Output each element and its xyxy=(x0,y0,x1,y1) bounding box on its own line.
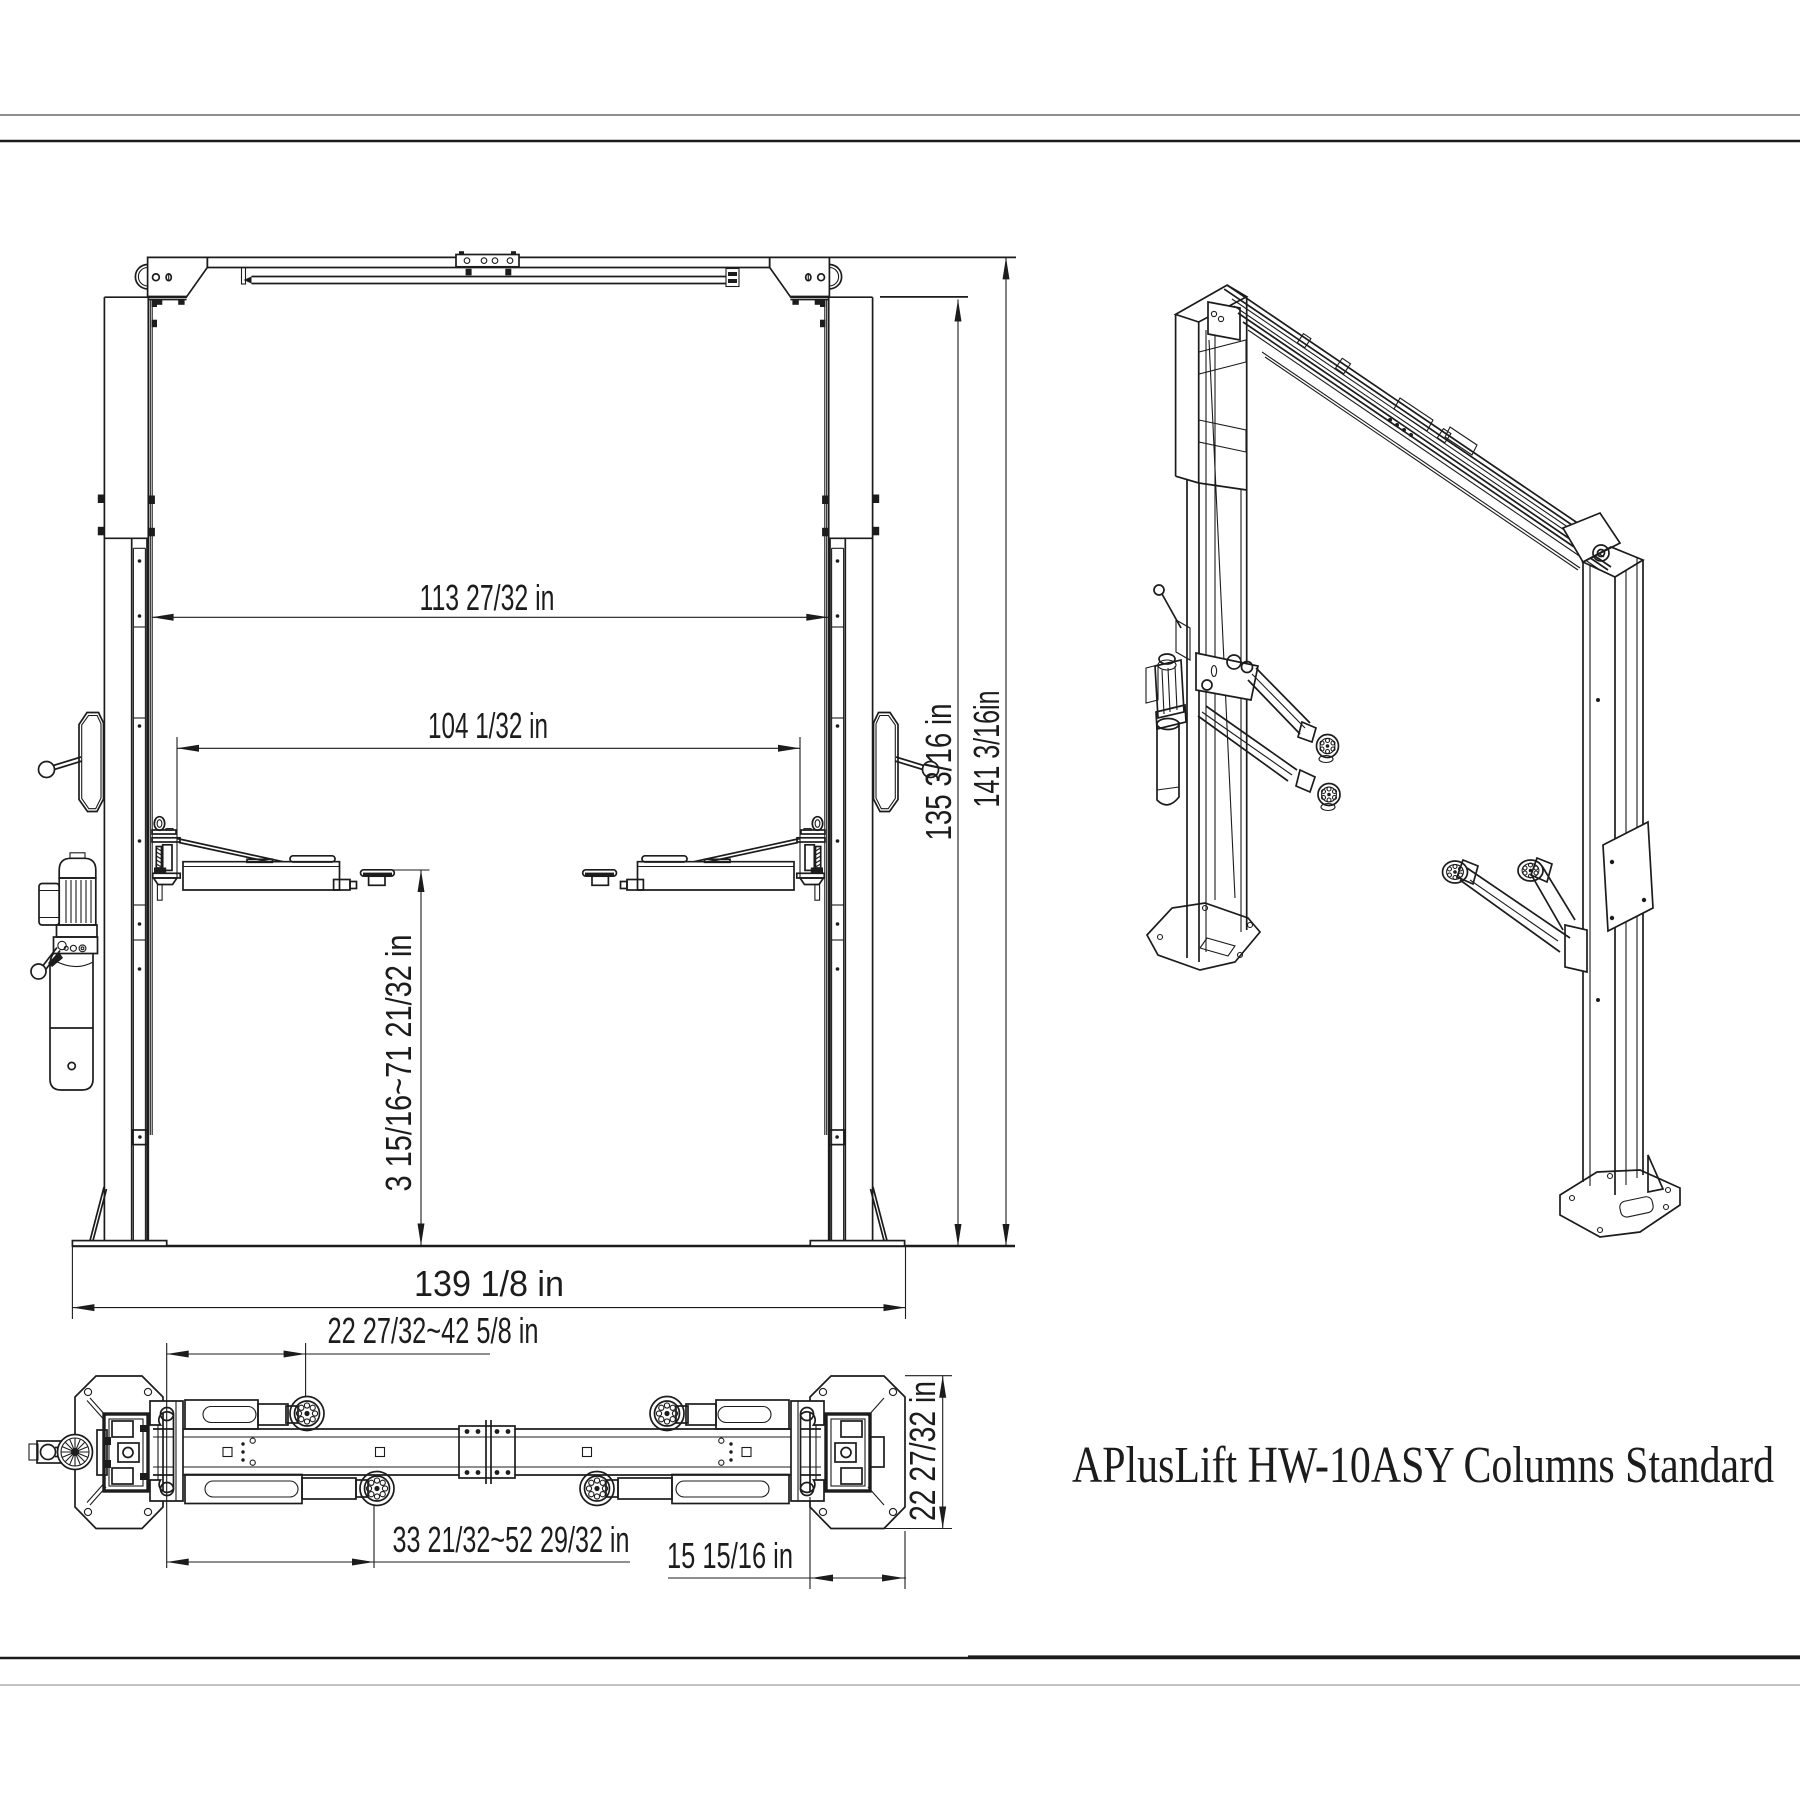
svg-text:104 1/32 in: 104 1/32 in xyxy=(428,705,548,746)
svg-text:139 1/8 in: 139 1/8 in xyxy=(414,1263,564,1304)
svg-text:APlusLift HW-10ASY Columns Sta: APlusLift HW-10ASY Columns Standard xyxy=(1072,1437,1774,1494)
svg-text:22 27/32~42 5/8 in: 22 27/32~42 5/8 in xyxy=(328,1310,539,1351)
svg-text:135 3/16 in: 135 3/16 in xyxy=(918,704,959,841)
svg-text:33 21/32~52 29/32 in: 33 21/32~52 29/32 in xyxy=(393,1519,630,1560)
svg-text:113 27/32 in: 113 27/32 in xyxy=(420,577,555,618)
svg-text:22 27/32 in: 22 27/32 in xyxy=(902,1381,943,1521)
svg-text:15 15/16 in: 15 15/16 in xyxy=(667,1535,793,1576)
svg-text:3 15/16~71 21/32 in: 3 15/16~71 21/32 in xyxy=(378,935,419,1192)
svg-text:141 3/16in: 141 3/16in xyxy=(966,691,1007,808)
